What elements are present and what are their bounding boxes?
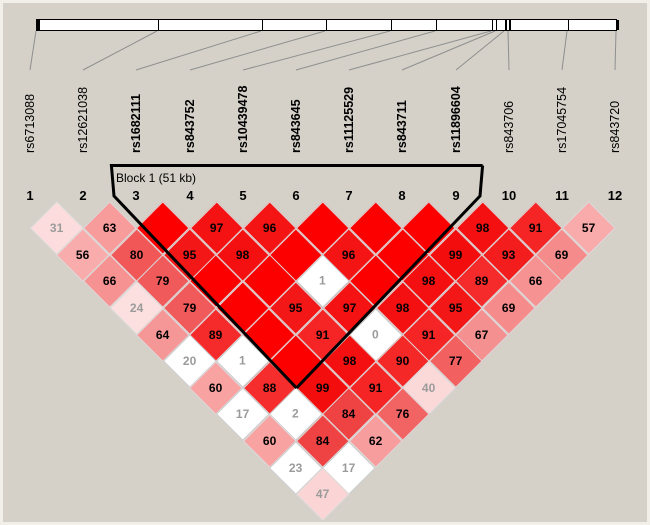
locus-tick-9 [505,20,507,30]
snp-label-rs12621038: rs12621038 [77,87,90,153]
connector-line-5 [243,31,390,70]
locus-tick-7 [492,20,493,30]
connector-line-11 [562,31,567,70]
snp-label-rs11125529: rs11125529 [343,87,356,153]
ld-value-2-5: 79 [156,275,169,287]
ld-value-9-11: 93 [502,249,515,261]
ld-value-3-10: 99 [316,382,329,394]
snp-label-rs843711: rs843711 [396,100,409,153]
ld-value-8-12: 69 [502,302,515,314]
ld-value-1-10: 60 [263,435,276,447]
ld-value-3-5: 95 [183,249,196,261]
snp-label-rs11896604: rs11896604 [450,86,463,153]
ld-value-4-8: 95 [289,302,302,314]
ld-value-2-10: 2 [293,408,300,420]
snp-number-2: 2 [68,188,98,203]
ld-value-5-12: 40 [422,382,435,394]
connector-line-9 [456,31,504,70]
ld-value-10-12: 69 [555,249,568,261]
locus-tick-10 [509,20,511,30]
ld-value-6-10: 98 [396,302,409,314]
ld-value-2-12: 17 [342,461,355,473]
snp-number-1: 1 [15,188,45,203]
snp-number-4: 4 [175,188,205,203]
ld-value-5-10: 0 [373,328,380,340]
connector-line-2 [83,31,157,70]
ld-value-9-12: 66 [529,275,542,287]
ld-value-7-10: 98 [422,275,435,287]
ld-value-2-3: 63 [103,222,116,234]
snp-number-5: 5 [228,188,258,203]
ld-value-1-4: 66 [103,275,116,287]
snp-label-rs843645: rs843645 [290,99,303,153]
snp-number-11: 11 [547,188,577,203]
locus-tick-4 [326,20,327,30]
ld-value-2-9: 88 [263,382,276,394]
snp-label-rs10439478: rs10439478 [237,86,250,153]
ld-value-1-2: 31 [50,222,63,234]
ld-value-1-5: 24 [130,302,143,314]
ld-value-1-8: 60 [209,382,222,394]
snp-number-10: 10 [494,188,524,203]
ld-value-2-4: 80 [130,249,143,261]
ld-value-8-10: 99 [449,249,462,261]
snp-label-rs843720: rs843720 [609,101,622,153]
ld-value-1-6: 64 [156,328,169,340]
snp-label-rs843752: rs843752 [184,99,197,153]
ld-value-5-11: 90 [396,355,409,367]
ld-value-4-11: 91 [369,382,382,394]
ld-value-7-11: 95 [449,302,462,314]
snp-number-6: 6 [281,188,311,203]
snp-number-12: 12 [600,188,630,203]
ld-value-5-8: 1 [319,275,326,287]
ld-value-4-12: 76 [396,408,409,420]
locus-tick-6 [436,20,437,30]
ld-value-2-7: 89 [209,328,222,340]
snp-label-rs17045754: rs17045754 [556,87,569,153]
ld-value-2-8: 1 [239,355,246,367]
ld-value-9-10: 98 [476,222,489,234]
ld-plot-figure: rs67130881rs126210382rs16821113rs8437524… [0,0,650,525]
block-label: Block 1 (51 kb) [116,171,196,185]
ld-value-5-6: 96 [263,222,276,234]
ld-value-11-12: 57 [582,222,595,234]
connector-line-8 [402,31,495,70]
snp-number-8: 8 [387,188,417,203]
snp-number-9: 9 [441,188,471,203]
ld-value-2-11: 84 [316,435,329,447]
ld-value-4-10: 98 [343,355,356,367]
ld-value-2-6: 79 [183,302,196,314]
ld-value-4-5: 97 [210,222,223,234]
locus-ruler [36,19,617,31]
ld-value-3-12: 62 [369,435,382,447]
ld-value-4-9: 91 [316,328,329,340]
ld-value-1-11: 23 [289,461,302,473]
ld-value-3-11: 84 [342,408,355,420]
ld-value-6-11: 91 [422,328,435,340]
ld-value-4-6: 98 [236,249,249,261]
ld-value-1-7: 20 [183,355,196,367]
locus-tick-2 [158,20,159,30]
locus-tick-5 [391,20,392,30]
ld-value-6-8: 96 [342,249,355,261]
connector-line-12 [615,31,616,70]
connector-line-10 [508,31,509,70]
snp-number-3: 3 [121,188,151,203]
ld-value-7-12: 67 [475,328,488,340]
snp-label-rs6713088: rs6713088 [24,94,37,153]
ld-value-10-11: 91 [529,222,542,234]
locus-tick-8 [496,20,497,30]
ld-value-6-12: 77 [449,355,462,367]
connector-line-6 [296,31,435,70]
ld-value-8-11: 89 [475,275,488,287]
ld-value-1-12: 47 [316,488,329,500]
snp-label-rs1682111: rs1682111 [130,94,143,153]
ld-value-1-3: 56 [76,249,89,261]
locus-tick-3 [262,20,263,30]
snp-label-rs843706: rs843706 [503,101,516,153]
connector-line-3 [136,31,261,70]
locus-tick-1 [37,20,40,30]
locus-tick-11 [568,20,569,30]
ld-value-5-9: 97 [343,302,356,314]
locus-tick-12 [617,20,619,30]
connector-line-7 [349,31,491,70]
ld-value-1-9: 17 [236,408,249,420]
connector-line-1 [30,31,36,70]
snp-number-7: 7 [334,188,364,203]
connector-line-4 [190,31,325,70]
